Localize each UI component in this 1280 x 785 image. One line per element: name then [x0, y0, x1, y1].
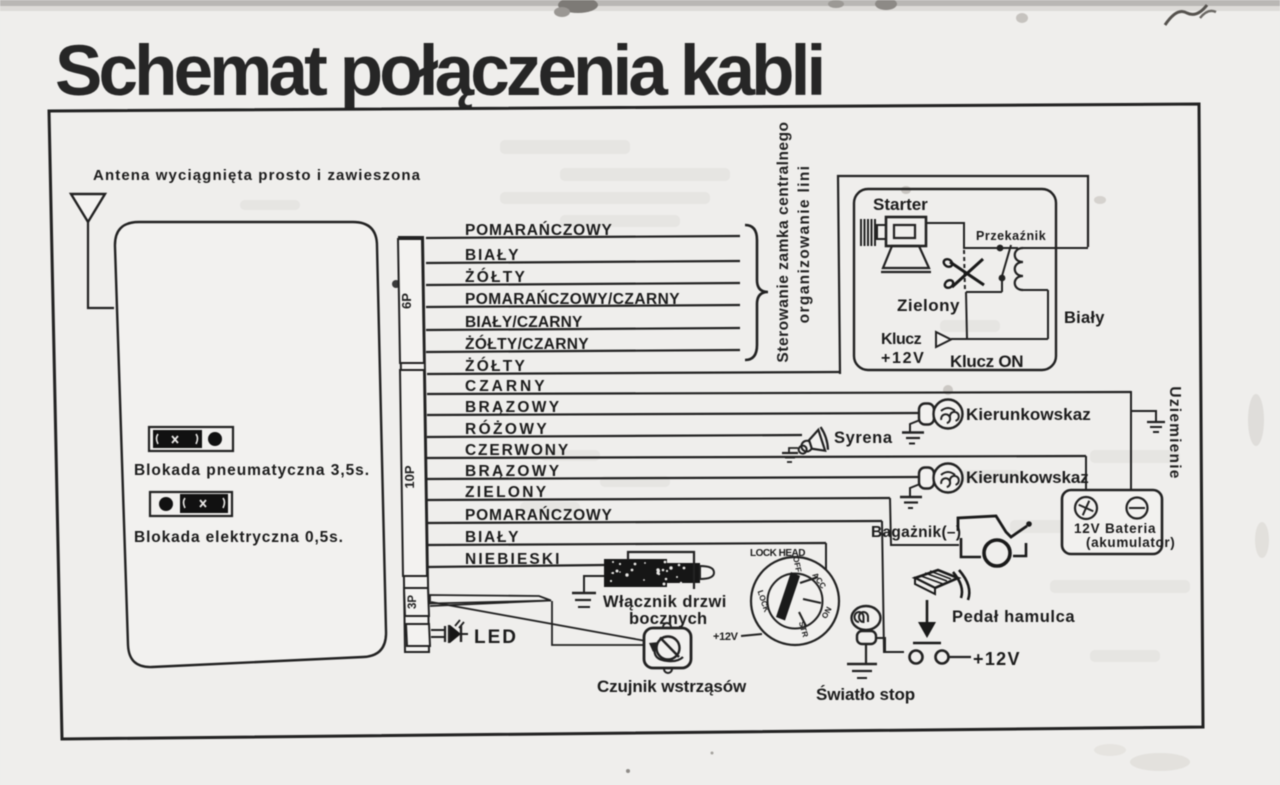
svg-text:Schemat połączenia kabli: Schemat połączenia kabli — [55, 32, 822, 111]
svg-text:Zielony: Zielony — [897, 296, 960, 315]
svg-text:Antena wyciągnięta prosto i z: Antena wyciągnięta prosto i zawieszona — [93, 167, 421, 184]
svg-text:Blokada elektryczna 0,5s.: Blokada elektryczna 0,5s. — [134, 529, 344, 546]
svg-text:Sterowanie zamka centralnego: Sterowanie zamka centralnego — [775, 121, 792, 362]
svg-text:Bagażnik(–): Bagażnik(–) — [871, 524, 961, 541]
svg-text:Syrena: Syrena — [834, 429, 893, 447]
svg-text:BIAŁY: BIAŁY — [465, 529, 520, 546]
svg-text:Włącznik drzwi: Włącznik drzwi — [603, 593, 727, 611]
svg-text:RÓŻOWY: RÓŻOWY — [465, 420, 549, 438]
svg-text:+12V: +12V — [713, 631, 739, 643]
svg-text:Klucz ON: Klucz ON — [950, 352, 1023, 371]
svg-text:Uziemienie: Uziemienie — [1166, 386, 1183, 479]
svg-text:3P: 3P — [407, 595, 419, 609]
svg-text:Przekaźnik: Przekaźnik — [976, 229, 1046, 243]
svg-text:Starter: Starter — [873, 195, 928, 214]
svg-text:bocznych: bocznych — [629, 610, 707, 628]
svg-text:Kierunkowskaz: Kierunkowskaz — [966, 405, 1091, 424]
svg-text:Światło stop: Światło stop — [816, 685, 915, 704]
svg-text:organizowanie lini: organizowanie lini — [796, 165, 813, 324]
svg-text:Blokada pneumatyczna 3,5s.: Blokada pneumatyczna 3,5s. — [134, 462, 370, 479]
svg-text:Pedał hamulca: Pedał hamulca — [952, 608, 1075, 626]
svg-text:6P: 6P — [399, 293, 414, 309]
svg-text:CZARNY: CZARNY — [465, 378, 548, 395]
svg-text:10P: 10P — [402, 465, 417, 488]
svg-text:Biały: Biały — [1064, 309, 1105, 327]
svg-text:Klucz: Klucz — [881, 331, 922, 348]
svg-text:LED: LED — [474, 627, 518, 648]
svg-text:ŻÓŁTY: ŻÓŁTY — [465, 268, 527, 286]
svg-text:ŻÓŁTY: ŻÓŁTY — [465, 357, 527, 375]
svg-text:(akumulator): (akumulator) — [1086, 535, 1175, 550]
svg-text:CZERWONY: CZERWONY — [465, 442, 570, 459]
svg-text:Czujnik wstrząsów: Czujnik wstrząsów — [597, 677, 747, 696]
svg-text:12V Bateria: 12V Bateria — [1074, 521, 1156, 536]
svg-text:+12V: +12V — [881, 350, 926, 367]
svg-text:Kierunkowskaz: Kierunkowskaz — [966, 468, 1089, 487]
svg-text:+12V: +12V — [973, 649, 1021, 669]
